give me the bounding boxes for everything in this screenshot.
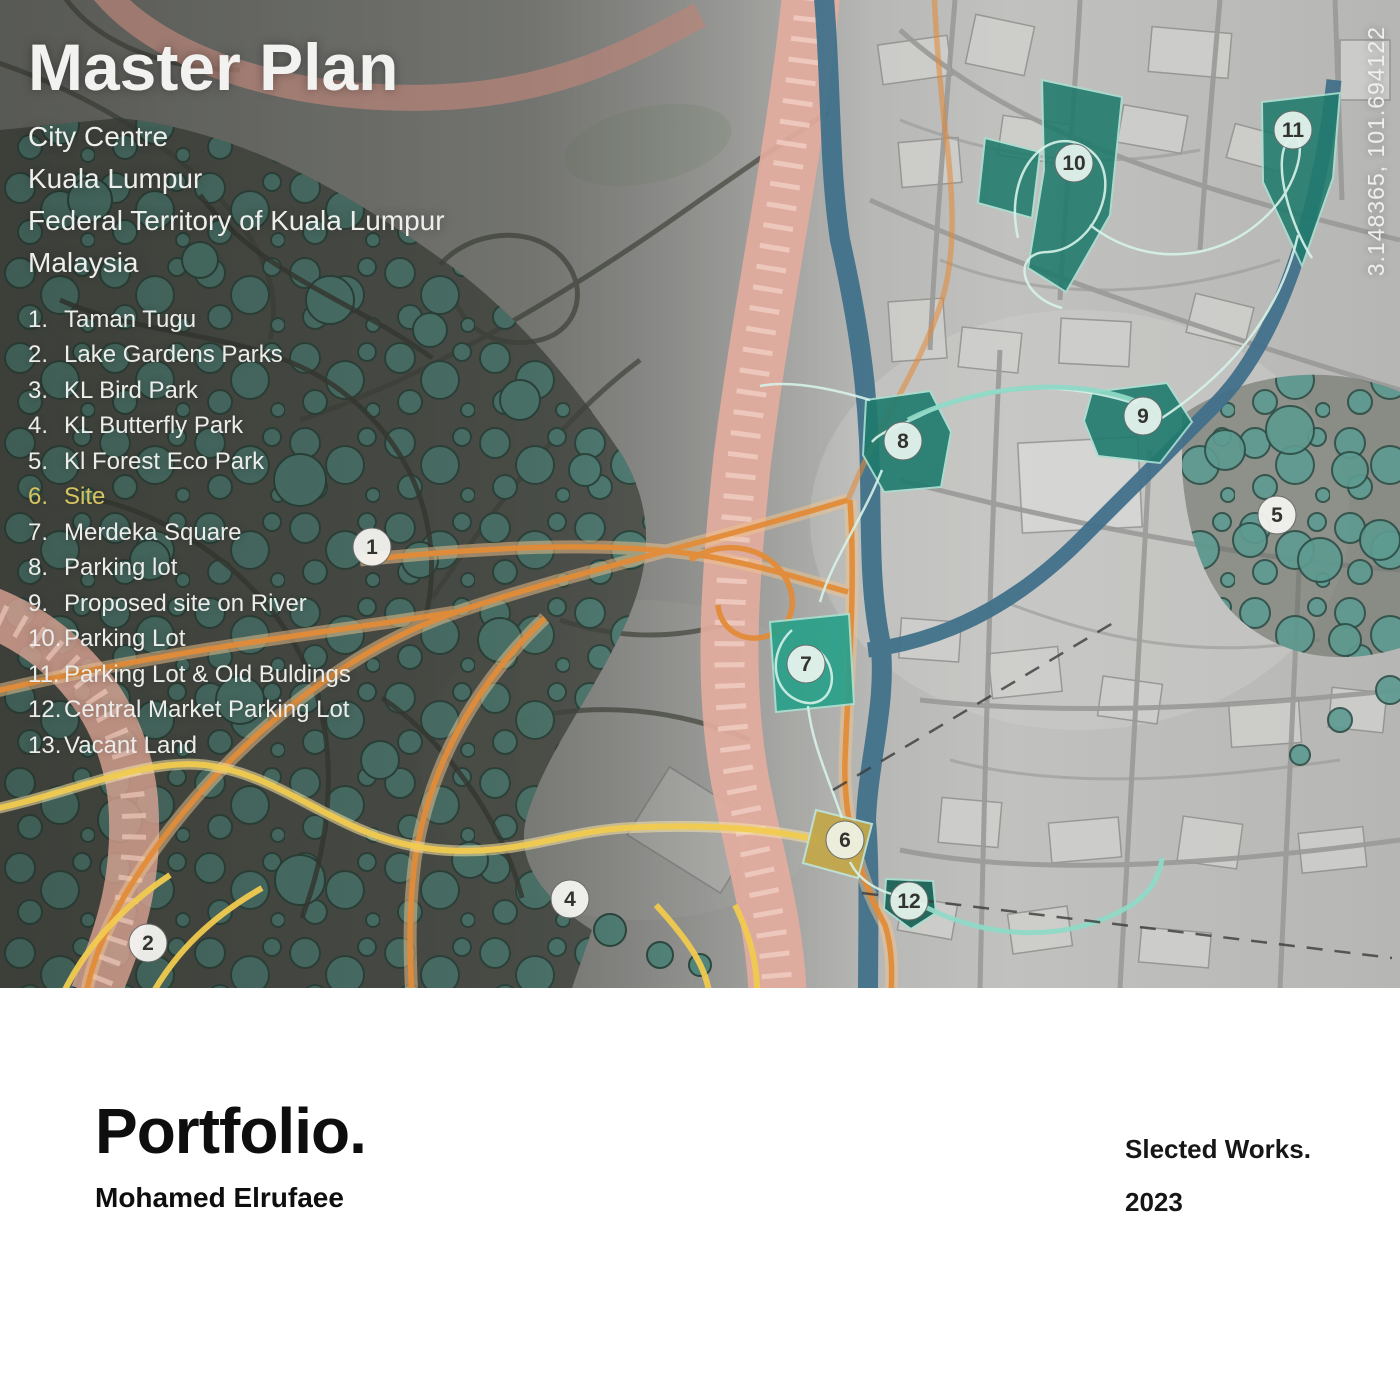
legend-item-2: 2.Lake Gardens Parks	[28, 338, 351, 374]
portfolio-year: 2023	[1125, 1187, 1311, 1218]
legend-label: Lake Gardens Parks	[64, 341, 283, 369]
legend-item-1: 1.Taman Tugu	[28, 302, 351, 338]
map-marker-label: 4	[564, 888, 576, 911]
legend-num: 11.	[28, 661, 64, 689]
subtitle-line: Kuala Lumpur	[28, 158, 445, 200]
legend-item-13: 13.Vacant Land	[28, 728, 351, 764]
legend-item-5: 5.Kl Forest Eco Park	[28, 444, 351, 480]
legend-item-9: 9.Proposed site on River	[28, 586, 351, 622]
subtitle-line: Federal Territory of Kuala Lumpur	[28, 200, 445, 242]
map-marker-label: 10	[1062, 152, 1085, 175]
legend-label: Kl Forest Eco Park	[64, 448, 264, 476]
legend-num: 10.	[28, 625, 64, 653]
page-title: Master Plan	[28, 34, 445, 100]
map-marker-8: 8	[884, 422, 922, 460]
map-marker-9: 9	[1124, 397, 1162, 435]
footer-right: Slected Works. 2023	[1125, 1134, 1311, 1218]
footer-left: Portfolio. Mohamed Elrufaee	[95, 1094, 366, 1214]
subtitle-block: City Centre Kuala Lumpur Federal Territo…	[28, 116, 445, 284]
legend-num: 6.	[28, 483, 64, 511]
selected-works-label: Slected Works.	[1125, 1134, 1311, 1165]
legend-label: Proposed site on River	[64, 590, 307, 618]
subtitle-line: City Centre	[28, 116, 445, 158]
title-block: Master Plan City Centre Kuala Lumpur Fed…	[28, 34, 445, 284]
legend-num: 3.	[28, 377, 64, 405]
legend-num: 12.	[28, 696, 64, 724]
map-marker-label: 7	[800, 653, 812, 676]
master-plan-map: 1 2 4 5 6 7 8	[0, 0, 1400, 988]
legend: 1.Taman Tugu 2.Lake Gardens Parks 3.KL B…	[28, 302, 351, 764]
map-marker-4: 4	[551, 880, 589, 918]
portfolio-author: Mohamed Elrufaee	[95, 1182, 366, 1214]
legend-item-6-site: 6.Site	[28, 480, 351, 516]
map-marker-11: 11	[1274, 111, 1312, 149]
legend-item-3: 3.KL Bird Park	[28, 373, 351, 409]
legend-label: Vacant Land	[64, 732, 197, 760]
legend-label: Merdeka Square	[64, 519, 241, 547]
legend-item-10: 10.Parking Lot	[28, 622, 351, 658]
portfolio-title: Portfolio.	[95, 1094, 366, 1168]
legend-label: Parking Lot & Old Buldings	[64, 661, 351, 689]
subtitle-line: Malaysia	[28, 242, 445, 284]
map-marker-5: 5	[1258, 496, 1296, 534]
map-marker-label: 2	[142, 932, 154, 955]
legend-num: 1.	[28, 306, 64, 334]
legend-label: KL Bird Park	[64, 377, 198, 405]
legend-label: Site	[64, 483, 105, 511]
map-marker-2: 2	[129, 924, 167, 962]
legend-num: 13.	[28, 732, 64, 760]
legend-label: Parking Lot	[64, 625, 185, 653]
legend-item-8: 8.Parking lot	[28, 551, 351, 587]
map-marker-label: 11	[1282, 119, 1305, 142]
map-coordinates: 3.148365, 101.694122	[1363, 26, 1390, 276]
map-marker-12: 12	[890, 882, 928, 920]
legend-item-11: 11.Parking Lot & Old Buldings	[28, 657, 351, 693]
legend-label: Central Market Parking Lot	[64, 696, 349, 724]
legend-num: 9.	[28, 590, 64, 618]
map-marker-1: 1	[353, 528, 391, 566]
legend-num: 5.	[28, 448, 64, 476]
legend-item-12: 12.Central Market Parking Lot	[28, 693, 351, 729]
legend-num: 2.	[28, 341, 64, 369]
legend-item-7: 7.Merdeka Square	[28, 515, 351, 551]
legend-label: Taman Tugu	[64, 306, 196, 334]
map-marker-label: 6	[839, 829, 851, 852]
map-marker-7: 7	[787, 645, 825, 683]
map-marker-label: 9	[1137, 405, 1149, 428]
legend-label: KL Butterfly Park	[64, 412, 243, 440]
map-marker-label: 12	[897, 890, 920, 913]
legend-num: 4.	[28, 412, 64, 440]
map-marker-10: 10	[1055, 144, 1093, 182]
legend-label: Parking lot	[64, 554, 177, 582]
site-polygon-10b	[978, 138, 1040, 218]
map-marker-label: 8	[897, 430, 909, 453]
map-marker-label: 1	[366, 536, 378, 559]
legend-item-4: 4.KL Butterfly Park	[28, 409, 351, 445]
portfolio-page: 1 2 4 5 6 7 8	[0, 0, 1400, 1400]
map-marker-label: 5	[1271, 504, 1283, 527]
legend-num: 7.	[28, 519, 64, 547]
legend-num: 8.	[28, 554, 64, 582]
map-marker-6: 6	[826, 821, 864, 859]
